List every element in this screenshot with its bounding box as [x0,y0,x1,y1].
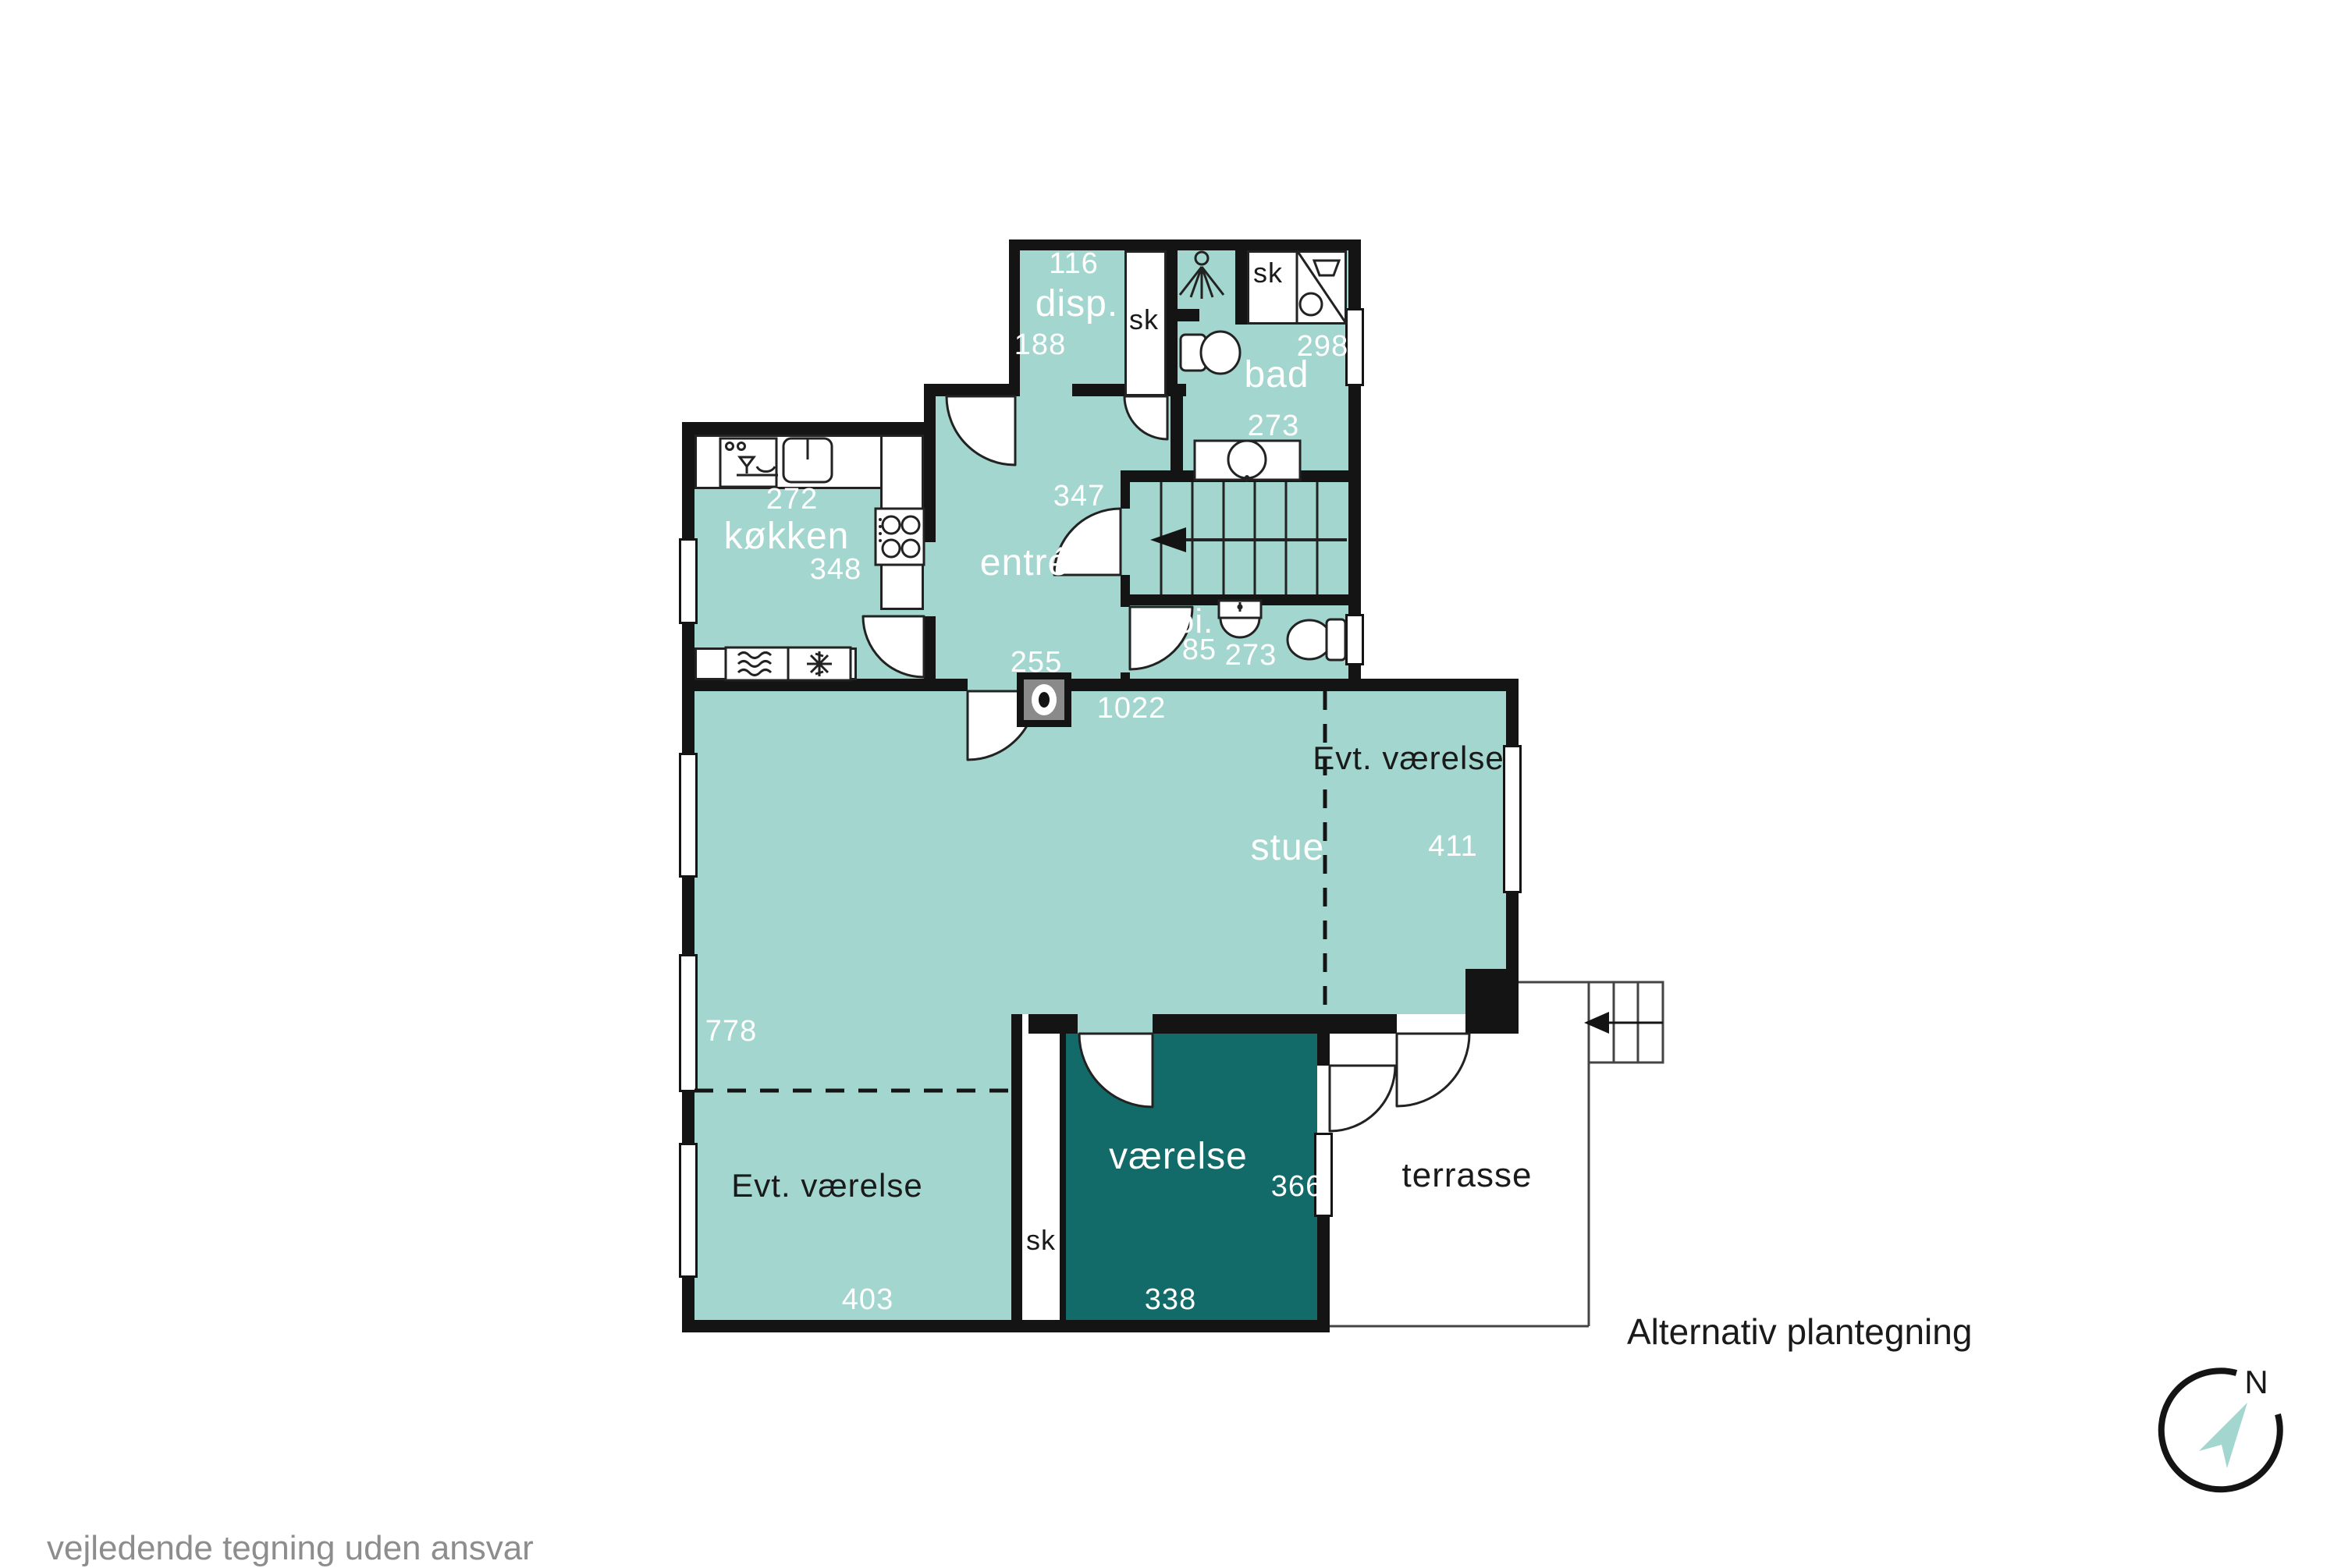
dim-disp-depth: 188 [1014,330,1066,360]
outdoor-steps-icon [1584,982,1663,1062]
door-arc [1079,1034,1153,1107]
closet-label-bad-sk: sk [1253,259,1283,287]
door-arc [947,396,1015,465]
dim-koekken-depth: 348 [810,555,861,584]
dim-vaerelse-depth: 366 [1271,1172,1323,1201]
bath-sink-icon [1195,441,1300,482]
floor-plan: 116 disp. 188 sk sk 298 bad 273 272 køkk… [0,0,2341,1560]
door-arc [1124,396,1167,439]
room-label-disp: disp. [1036,286,1118,323]
door-arc [863,616,924,677]
room-label-stue: stue [1251,829,1325,867]
room-label-evt-vaerelse-top: Evt. værelse [1313,742,1504,775]
stove-icon [876,509,924,565]
dim-evt-vaerelse-top: 411 [1428,832,1478,861]
dim-koekken-width: 272 [766,484,818,514]
dim-entre-depth: 347 [1053,481,1105,511]
closet-label-vaerelse-sk: sk [1026,1226,1056,1254]
fridge-icon [726,647,788,680]
dim-stue-width: 1022 [1097,694,1167,723]
room-label-entre: entré [980,545,1069,582]
room-label-vaerelse: værelse [1109,1138,1248,1176]
disclaimer-text: vejledende tegning uden ansvar [47,1529,534,1568]
toilet-icon [1288,619,1345,660]
stair-arrow-icon [1150,527,1186,552]
room-label-bad: bad [1244,357,1309,394]
dim-evt-vaerelse-bottom: 403 [842,1285,893,1314]
dim-vaerelse-width: 338 [1145,1285,1196,1314]
closet-label-disp-sk: sk [1129,306,1159,334]
room-label-evt-vaerelse-bottom: Evt. værelse [731,1169,922,1202]
compass-north-label: N [2244,1366,2268,1399]
kitchen-sink-icon [783,438,832,482]
stairs-icon [1150,482,1347,594]
caption-alternative-plan: Alternativ plantegning [1627,1311,1972,1353]
plan-overlay [0,0,2341,1560]
dishwasher-icon [720,438,778,487]
room-label-koekken: køkken [724,518,850,555]
compass-arrow-icon [2199,1403,2247,1468]
freezer-icon [788,647,851,680]
dashed-divider [694,691,1325,1091]
dim-toi-depth: 85 [1182,635,1217,665]
dim-toi-width: 273 [1225,640,1277,670]
room-label-terrasse: terrasse [1402,1158,1533,1193]
washer-closet-icon [1297,250,1347,325]
dim-disp-width: 116 [1049,249,1099,278]
fireplace-icon [1017,672,1071,727]
dim-bad-width: 273 [1248,411,1299,441]
dim-stue-depth: 778 [705,1016,757,1046]
dim-entre-width: 255 [1011,647,1062,677]
hand-basin-icon [1219,601,1261,637]
door-arc [1330,1066,1395,1131]
toilet-icon [1181,332,1240,374]
shower-icon [1180,252,1224,299]
door-arc [1397,1034,1469,1106]
